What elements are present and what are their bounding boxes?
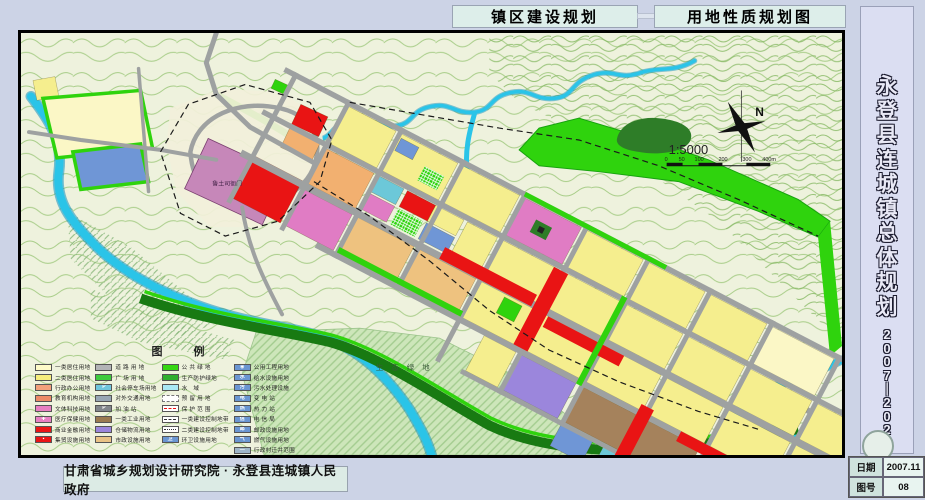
legend-item: 对外交通用地 — [95, 393, 156, 403]
svg-text:100: 100 — [695, 157, 704, 163]
sheet-number-label: 图号 — [849, 477, 883, 497]
legend-column-1: 一类居住用地二类居住用地行政办公用地教育机构用地文体科技用地✚医疗保健用地商业金… — [35, 362, 90, 456]
svg-text:50: 50 — [679, 157, 685, 163]
legend-item: 气燃气设施用地 — [234, 435, 295, 445]
legend-column-3: 公 共 绿 地生产防护绿地水 域预 留 用 地保 护 范 围一类建设控制地带二类… — [162, 362, 229, 456]
legend-item: ◉公用工程用地 — [234, 362, 295, 372]
legend-item: 广 场 用 地 — [95, 372, 156, 382]
legend-item: 水给水设施用地 — [234, 372, 295, 382]
svg-text:300: 300 — [742, 157, 751, 163]
legend-item: 预 留 用 地 — [162, 393, 229, 403]
legend-item: 文体科技用地 — [35, 404, 90, 414]
svg-text:0: 0 — [665, 157, 668, 163]
legend-item: 一类建设控制地带 — [162, 414, 229, 424]
title-connector — [637, 13, 655, 19]
title-landuse-plan: 用地性质规划图 — [654, 5, 846, 28]
date-label: 日期 — [849, 457, 883, 477]
legend-item: 生产防护绿地 — [162, 372, 229, 382]
legend-item: 热热 力 站 — [234, 404, 295, 414]
legend-item: 市政设施用地 — [95, 435, 156, 445]
legend-item: 商业金融用地 — [35, 424, 90, 434]
legend-item: ✚医疗保健用地 — [35, 414, 90, 424]
svg-text:400m: 400m — [762, 157, 776, 163]
legend: 图 例 一类居住用地二类居住用地行政办公用地教育机构用地文体科技用地✚医疗保健用… — [35, 343, 331, 456]
map-frame: N 1:5000 0 50 100 200 300 400m 生 态 绿 地 鲁… — [18, 30, 845, 458]
eco-green-label: 生 态 绿 地 — [376, 362, 433, 372]
legend-item: 电变 电 站 — [234, 393, 295, 403]
svg-text:N: N — [755, 105, 764, 119]
legend-item: 卫环卫设施用地 — [162, 435, 229, 445]
legend-item: 道 路 用 地 — [95, 362, 156, 372]
legend-item: 仓储物流用地 — [95, 424, 156, 434]
legend-item: 行政办公用地 — [35, 383, 90, 393]
legend-item: —行政村迁并范围 — [234, 445, 295, 455]
legend-column-4: ◉公用工程用地水给水设施用地污污水处理设施电变 电 站热热 力 站信电 信 局邮… — [234, 362, 295, 456]
legend-item: 公 共 绿 地 — [162, 362, 229, 372]
legend-item: 水 域 — [162, 383, 229, 393]
legend-item: 教育机构用地 — [35, 393, 90, 403]
legend-title: 图 例 — [35, 343, 331, 359]
legend-item: 信电 信 局 — [234, 414, 295, 424]
legend-item: 二类建设控制地带 — [162, 424, 229, 434]
plan-title-vertical: 永登县连城镇总体规划 — [877, 75, 898, 320]
organization-bar: 甘肃省城乡规划设计研究院 · 永登县连城镇人民政府 — [63, 466, 348, 492]
svg-text:1:5000: 1:5000 — [669, 142, 709, 157]
legend-item: 污污水处理设施 — [234, 383, 295, 393]
svg-text:200: 200 — [718, 157, 727, 163]
legend-item: P加 油 站 — [95, 404, 156, 414]
legend-item: 邮邮政设施用地 — [234, 424, 295, 434]
sheet-info-table: 日期 2007.11 图号 08 — [848, 456, 925, 498]
legend-item: 二类居住用地 — [35, 372, 90, 382]
legend-item: P社会停车场用地 — [95, 383, 156, 393]
title-sidebar: 永登县连城镇总体规划 2007—2020 日期 2007.11 图号 08 — [848, 0, 925, 500]
legend-item: 一类居住用地 — [35, 362, 90, 372]
date-value: 2007.11 — [883, 457, 924, 477]
sheet-number-value: 08 — [883, 477, 924, 497]
heritage-label: 鲁土司衙门 — [212, 180, 242, 188]
legend-item: 保 护 范 围 — [162, 404, 229, 414]
legend-item: ▪集贸设施用地 — [35, 435, 90, 445]
title-construction-plan: 镇区建设规划 — [452, 5, 638, 28]
legend-column-2: 道 路 用 地广 场 用 地P社会停车场用地对外交通用地P加 油 站一类工业用地… — [95, 362, 156, 456]
sidebar-panel: 永登县连城镇总体规划 2007—2020 — [860, 6, 914, 454]
legend-item: 一类工业用地 — [95, 414, 156, 424]
